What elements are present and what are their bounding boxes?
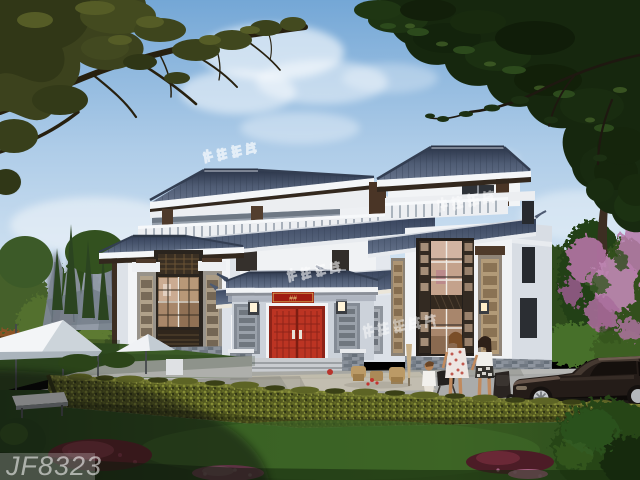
svg-text:##: ## [289,296,297,303]
svg-text:JF8323: JF8323 [5,451,102,480]
